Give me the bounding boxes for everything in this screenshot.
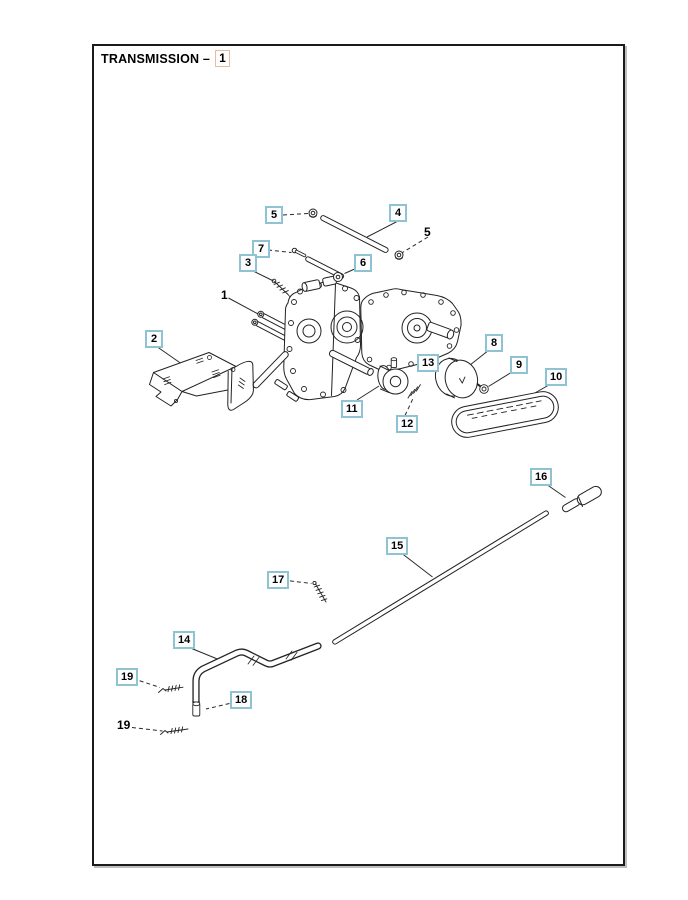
leader-1	[229, 298, 261, 315]
leader-11	[357, 386, 379, 400]
leader-4	[367, 221, 398, 237]
leader-12	[405, 398, 414, 416]
part-15-rod	[332, 510, 549, 645]
part-14-rod	[193, 646, 318, 702]
callout-9[interactable]: 9	[510, 356, 528, 374]
part-13-pin	[391, 358, 396, 368]
callout-19-top[interactable]: 19	[116, 668, 138, 686]
callout-12[interactable]: 12	[396, 415, 418, 433]
part-19-screw-bottom	[161, 727, 189, 735]
callout-1: 1	[221, 289, 228, 301]
callout-10[interactable]: 10	[545, 368, 567, 386]
part-5-nut-left	[309, 209, 317, 217]
callout-3[interactable]: 3	[239, 254, 257, 272]
callout-5-right: 5	[424, 226, 431, 238]
part-11-pulley	[376, 365, 408, 394]
leader-19-bottom	[132, 728, 163, 732]
part-3-screw	[272, 279, 290, 297]
part-12-spring	[408, 385, 420, 398]
part-18-pin	[193, 702, 200, 716]
callout-13[interactable]: 13	[417, 354, 439, 372]
callout-2[interactable]: 2	[145, 330, 163, 348]
page: TRANSMISSION – 1	[0, 0, 688, 900]
part-19-screw-top	[159, 685, 184, 693]
callout-8[interactable]: 8	[485, 334, 503, 352]
callout-4[interactable]: 4	[389, 204, 407, 222]
part-5-nut-right	[395, 251, 403, 259]
leader-18	[206, 704, 230, 710]
callout-17[interactable]: 17	[267, 571, 289, 589]
leader-5-right	[403, 237, 429, 253]
part-7-screw	[292, 248, 304, 255]
leader-15	[400, 552, 433, 577]
parts-diagram	[0, 0, 688, 900]
leader-16	[546, 484, 566, 498]
callout-14[interactable]: 14	[173, 631, 195, 649]
part-2-bracket	[150, 353, 254, 411]
callout-6[interactable]: 6	[354, 254, 372, 272]
callout-19-bottom: 19	[117, 719, 130, 731]
callout-15[interactable]: 15	[386, 537, 408, 555]
part-16-handle	[561, 484, 603, 513]
callout-18[interactable]: 18	[230, 691, 252, 709]
callout-11[interactable]: 11	[341, 400, 363, 418]
part-9-bolt	[478, 384, 489, 393]
callout-5-left[interactable]: 5	[265, 206, 283, 224]
part-4-rod	[320, 215, 389, 254]
part-17-screw	[313, 581, 327, 602]
leader-5-left	[283, 214, 308, 216]
callout-16[interactable]: 16	[530, 468, 552, 486]
leader-7	[268, 250, 292, 253]
